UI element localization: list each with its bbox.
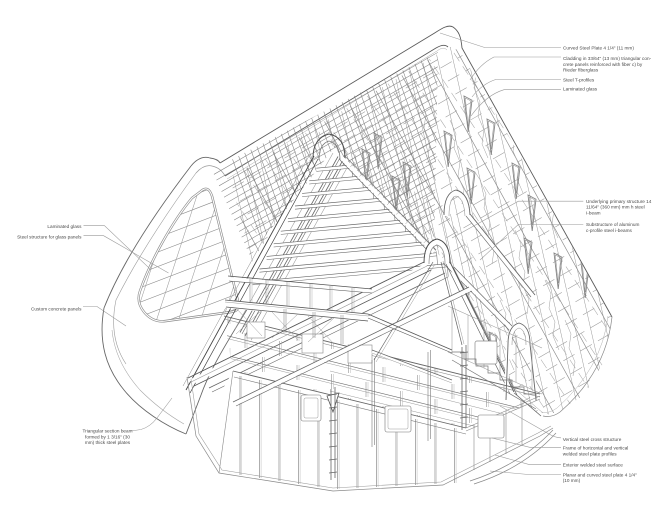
svg-text:Underlying primary structure 1: Underlying primary structure 14 — [586, 199, 652, 204]
svg-text:I-beam: I-beam — [586, 211, 601, 216]
svg-text:Frame of horizontal and vertic: Frame of horizontal and vertical — [563, 446, 629, 451]
svg-text:Substructure of aluminum: Substructure of aluminum — [586, 222, 640, 227]
svg-text:Steel T-profiles: Steel T-profiles — [563, 78, 595, 83]
svg-text:11/64" (360 mm) mm h steel: 11/64" (360 mm) mm h steel — [586, 205, 645, 210]
svg-text:crete panels reinforced with f: crete panels reinforced with fiber c) by — [563, 62, 643, 67]
svg-text:Laminated glass: Laminated glass — [563, 87, 598, 92]
svg-text:Rieder fiberglass: Rieder fiberglass — [563, 68, 599, 73]
svg-text:c-profile steel i-beams: c-profile steel i-beams — [586, 228, 633, 233]
svg-text:Triangular section beam: Triangular section beam — [82, 429, 132, 434]
svg-text:welded steel plate profiles: welded steel plate profiles — [563, 452, 618, 457]
svg-text:Exterior welded steel surface: Exterior welded steel surface — [563, 463, 624, 468]
svg-text:mm) thick steel plates: mm) thick steel plates — [85, 440, 131, 445]
svg-text:(10 mm): (10 mm) — [563, 478, 581, 483]
svg-text:Laminated glass: Laminated glass — [47, 224, 82, 229]
svg-text:Cladding in 33/64" (13 mm) tri: Cladding in 33/64" (13 mm) triangular co… — [563, 56, 652, 61]
svg-text:formed by 1 3/16" (30: formed by 1 3/16" (30 — [85, 434, 130, 439]
svg-text:Steel structure for glass pane: Steel structure for glass panels — [17, 235, 82, 240]
svg-text:Curved Steel Plate 4 1/4" (11: Curved Steel Plate 4 1/4" (11 mm) — [563, 46, 634, 51]
svg-text:Planar and curved steel plate: Planar and curved steel plate 4 1/4" — [563, 472, 637, 477]
svg-text:Custom concrete panels: Custom concrete panels — [31, 307, 82, 312]
svg-text:Vertical steel cross structure: Vertical steel cross structure — [563, 437, 622, 442]
